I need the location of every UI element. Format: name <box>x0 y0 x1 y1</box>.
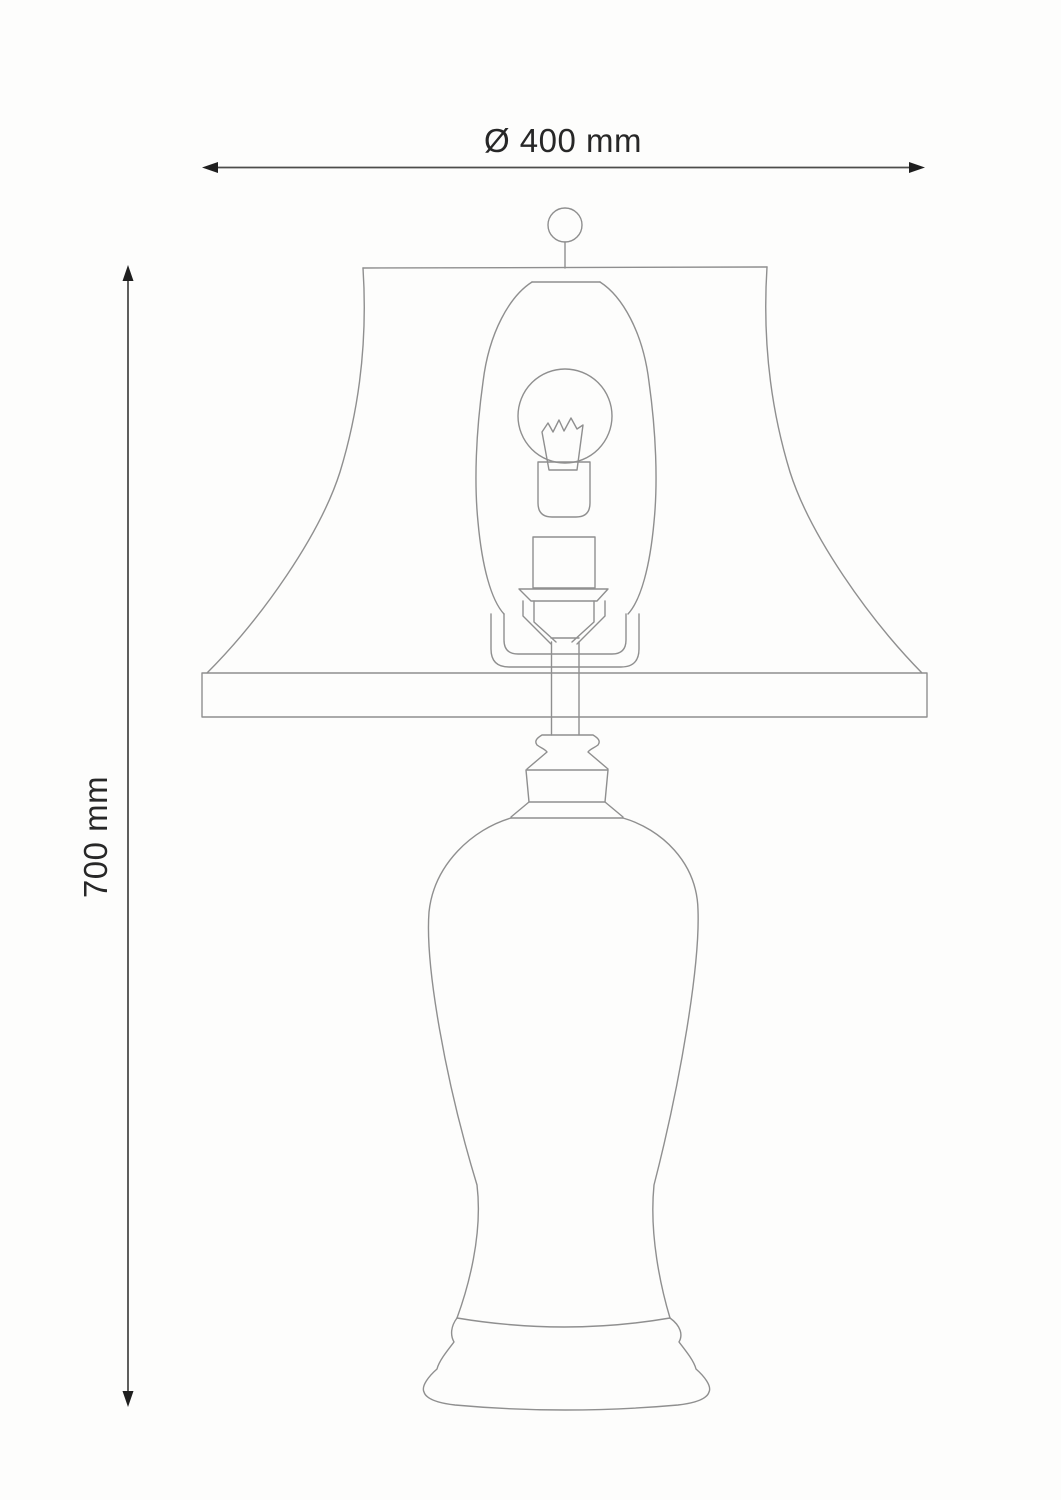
center-pipe <box>552 642 580 735</box>
neck-collar <box>526 735 608 802</box>
finial-circle <box>548 208 582 242</box>
base-top-edge <box>457 1318 670 1327</box>
harp-bracket-inner <box>504 614 626 654</box>
inner-shade-arch-left <box>476 282 532 614</box>
arrow-up-icon <box>123 265 134 281</box>
lampshade-left-side <box>207 268 364 673</box>
width-dimension-label: Ø 400 mm <box>484 122 642 159</box>
socket-cup <box>523 601 605 644</box>
lampshade-rim <box>202 673 927 717</box>
lamp-line-art <box>202 208 927 1410</box>
height-dimension-label: 700 mm <box>77 776 114 898</box>
socket-holder <box>533 537 595 588</box>
vase-body-left <box>428 818 511 1318</box>
light-bulb <box>518 369 612 463</box>
lampshade-right-side <box>766 267 922 673</box>
arrow-down-icon <box>123 1391 134 1407</box>
harp-bracket-outer <box>491 614 639 667</box>
lampshade-top-edge <box>363 267 767 268</box>
neck-flange <box>511 802 623 818</box>
inner-shade-arch-right <box>600 282 656 614</box>
width-dimension <box>202 162 925 173</box>
vase-body-right <box>623 818 698 1318</box>
harp-saddle <box>519 589 608 601</box>
arrow-left-icon <box>202 162 218 173</box>
height-dimension <box>123 265 134 1407</box>
base-outline <box>423 1318 709 1410</box>
arrow-right-icon <box>909 162 925 173</box>
drawing-svg: Ø 400 mm 700 mm <box>0 0 1061 1500</box>
lamp-technical-drawing: Ø 400 mm 700 mm <box>0 0 1061 1500</box>
